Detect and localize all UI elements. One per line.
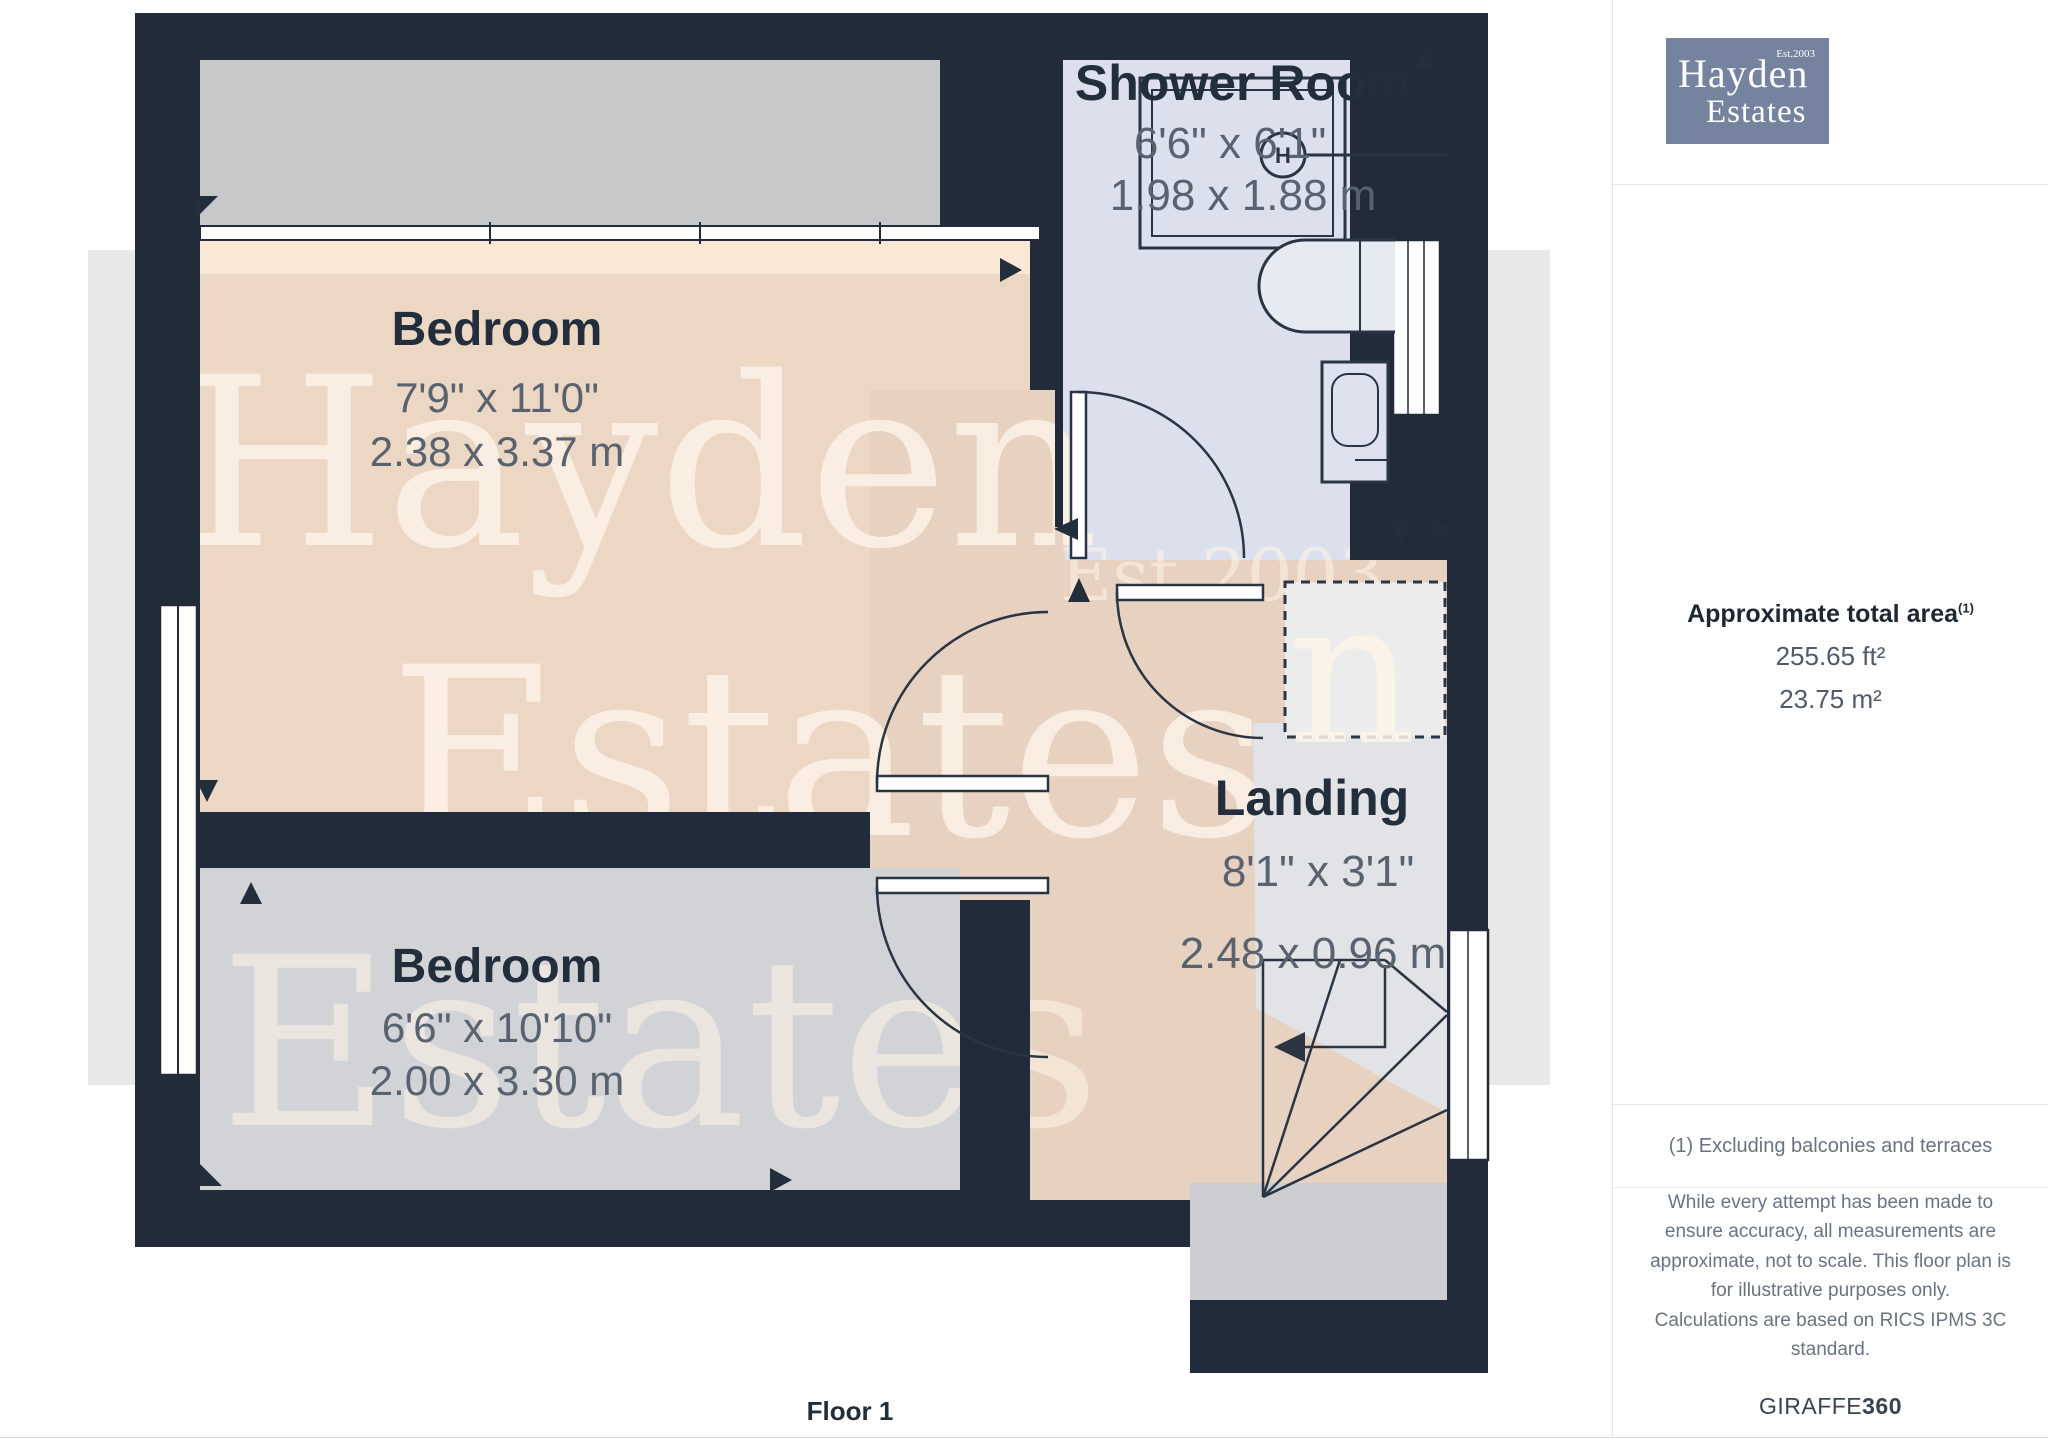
floor-plan: Hayden Estates Estates Est.2003 H [0, 0, 1612, 1446]
landing-imperial: 8'1" x 3'1" [1222, 847, 1414, 896]
giraffe360-logo: GIRAFFE360 [1613, 1389, 2048, 1425]
under-stairs-area [1190, 1183, 1447, 1300]
footnote-text: (1) Excluding balconies and terraces [1669, 1135, 1993, 1158]
sink-icon [1259, 240, 1395, 332]
area-footnote-marker: (1) [1958, 601, 1974, 616]
window-left [160, 605, 197, 1075]
area-imperial-value: 255.65 ft² [1613, 641, 2048, 672]
floor-plan-svg: Hayden Estates Estates Est.2003 H [0, 0, 1612, 1446]
bedroom1-imperial: 7'9" x 11'0" [395, 374, 599, 421]
svg-text:n: n [1288, 557, 1417, 790]
disclaimer-text-1: While every attempt has been made to ens… [1650, 1188, 2012, 1306]
bedroom1-door [877, 776, 1048, 791]
logo-name-2: Estates [1706, 94, 1806, 131]
info-sidebar: Hayden Est.2003 Estates Approximate tota… [1612, 0, 2048, 1437]
shower-room-imperial: 6'6" x 6'1" [1134, 119, 1326, 168]
area-metric-value: 23.75 m² [1613, 684, 2048, 715]
footnote-section: (1) Excluding balconies and terraces [1613, 1105, 2048, 1188]
area-title: Approximate total area(1) [1613, 600, 2048, 629]
bedroom1-metric: 2.38 x 3.37 m [370, 428, 624, 475]
eaves-area [200, 60, 940, 232]
bedroom2-metric: 2.00 x 3.30 m [370, 1057, 624, 1104]
landing-metric: 2.48 x 0.96 m [1180, 929, 1447, 978]
landing-door [1117, 585, 1263, 600]
disclaimer-text-2: Calculations are based on RICS IPMS 3C s… [1650, 1306, 2012, 1365]
floor-label: Floor 1 [650, 1396, 1050, 1427]
shower-room-name: Shower Room [1075, 55, 1411, 111]
logo-section: Hayden Est.2003 Estates [1613, 0, 2048, 185]
bedroom2-name: Bedroom [392, 940, 603, 993]
bedroom2-door [877, 878, 1048, 893]
window-stairs [1449, 930, 1488, 1160]
landing-name: Landing [1215, 770, 1409, 826]
agency-logo: Hayden Est.2003 Estates [1666, 38, 1829, 144]
disclaimer-section: While every attempt has been made to ens… [1613, 1188, 2048, 1437]
bedroom2-imperial: 6'6" x 10'10" [382, 1004, 612, 1051]
total-area-section: Approximate total area(1) 255.65 ft² 23.… [1613, 185, 2048, 1105]
logo-est-label: Est.2003 [1776, 48, 1815, 60]
svg-text:Hayden: Hayden [181, 328, 1100, 601]
window-shower [1393, 240, 1440, 415]
shower-room-metric: 1.98 x 1.88 m [1110, 171, 1377, 220]
bedroom1-name: Bedroom [392, 303, 603, 356]
page-bottom-divider [0, 1437, 2048, 1438]
window-top [200, 222, 1040, 244]
